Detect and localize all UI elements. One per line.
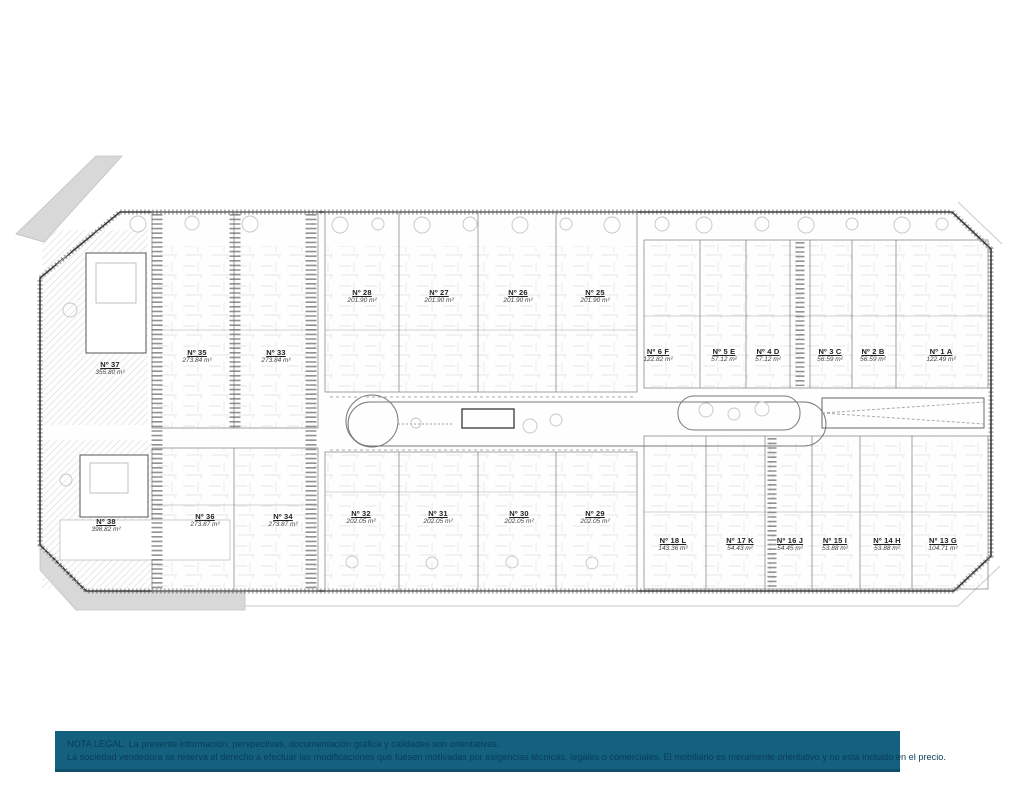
- legal-note-line2: La sociedad vendedora se reserva el dere…: [67, 751, 900, 764]
- site-plan-drawing: [0, 0, 1024, 800]
- legal-note-line1: NOTA LEGAL: La presente información, per…: [67, 738, 900, 751]
- legal-note-bar: NOTA LEGAL: La presente información, per…: [55, 731, 900, 772]
- page: Nº 37 355.80 m² Nº 35 273.84 m² Nº 33 27…: [0, 0, 1024, 800]
